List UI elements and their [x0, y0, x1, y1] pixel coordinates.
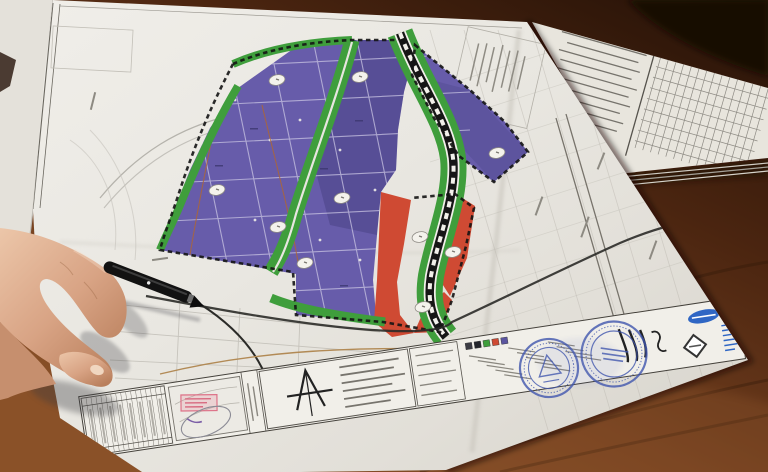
legend-swatch	[465, 342, 472, 349]
photo-scene	[0, 0, 768, 472]
legend-swatch	[492, 338, 499, 345]
legend-swatch	[483, 340, 490, 347]
legend-swatch	[474, 341, 481, 348]
legend-swatch	[501, 337, 508, 344]
pink-stamp	[181, 395, 217, 411]
